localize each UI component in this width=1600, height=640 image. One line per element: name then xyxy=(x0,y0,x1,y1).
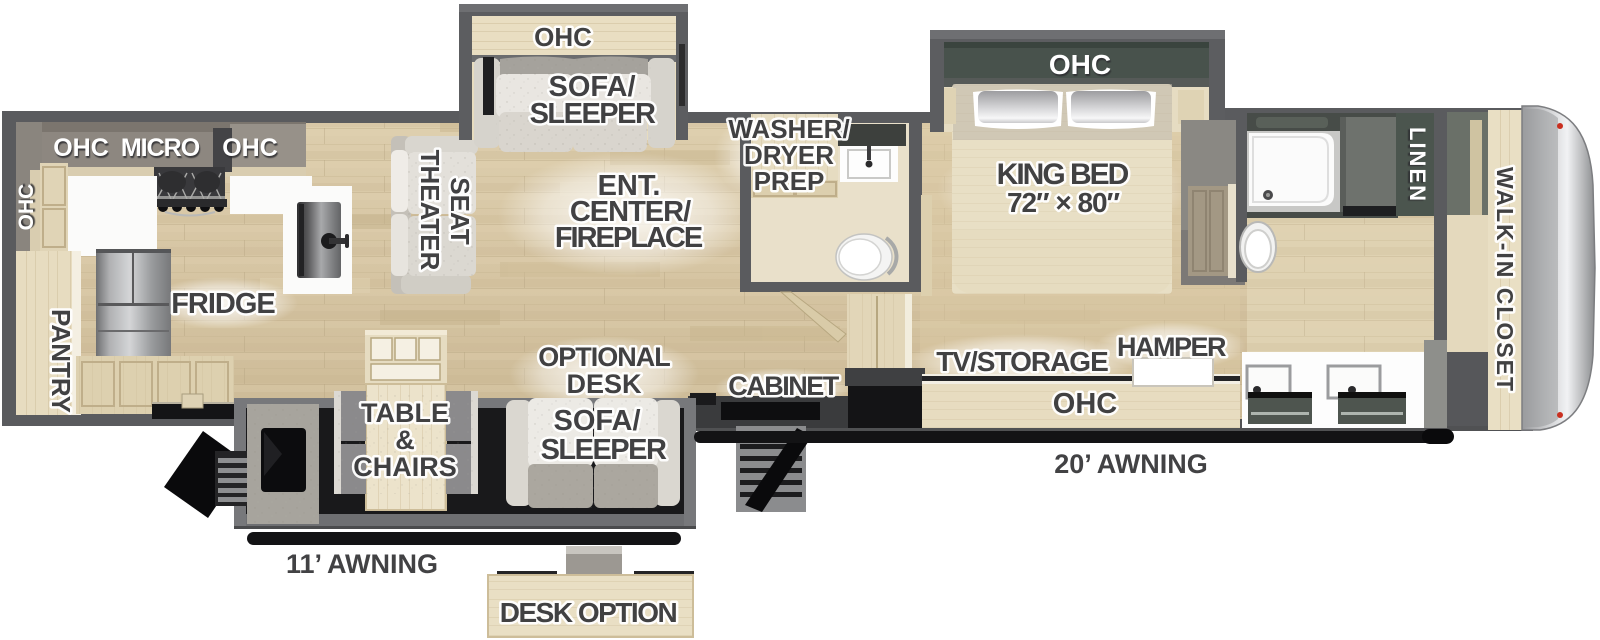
svg-text:OHC: OHC xyxy=(1049,49,1111,80)
svg-text:PREP: PREP xyxy=(754,166,825,196)
svg-text:OHC: OHC xyxy=(222,134,278,162)
svg-text:CHAIRS: CHAIRS xyxy=(353,452,457,482)
svg-text:DESK OPTION: DESK OPTION xyxy=(500,597,677,628)
svg-text:OHC: OHC xyxy=(15,184,38,231)
svg-text:DESK: DESK xyxy=(566,369,642,399)
svg-text:SEAT: SEAT xyxy=(445,177,475,245)
svg-text:FRIDGE: FRIDGE xyxy=(171,288,275,320)
svg-text:SLEEPER: SLEEPER xyxy=(530,98,656,130)
svg-text:LINEN: LINEN xyxy=(1405,127,1430,203)
svg-text:WALK-IN CLOSET: WALK-IN CLOSET xyxy=(1492,167,1518,393)
svg-text:PANTRY: PANTRY xyxy=(46,309,76,413)
svg-text:OHC: OHC xyxy=(534,22,592,52)
svg-text:OPTIONAL: OPTIONAL xyxy=(538,342,670,372)
svg-text:SOFA/: SOFA/ xyxy=(553,405,640,437)
svg-text:HAMPER: HAMPER xyxy=(1117,332,1226,362)
svg-text:OHC: OHC xyxy=(53,134,109,162)
svg-text:CABINET: CABINET xyxy=(728,371,840,401)
svg-text:11’ AWNING: 11’ AWNING xyxy=(286,549,438,579)
svg-text:MICRO: MICRO xyxy=(121,134,200,162)
svg-text:SLEEPER: SLEEPER xyxy=(541,434,667,466)
svg-text:FIREPLACE: FIREPLACE xyxy=(555,222,703,254)
svg-text:&: & xyxy=(395,425,415,455)
svg-text:THEATER: THEATER xyxy=(415,150,445,271)
svg-text:TABLE: TABLE xyxy=(361,398,449,428)
svg-text:OHC: OHC xyxy=(1053,388,1118,420)
svg-text:20’ AWNING: 20’ AWNING xyxy=(1054,449,1208,479)
svg-text:72″ × 80″: 72″ × 80″ xyxy=(1007,187,1120,218)
svg-text:TV/STORAGE: TV/STORAGE xyxy=(936,346,1108,377)
